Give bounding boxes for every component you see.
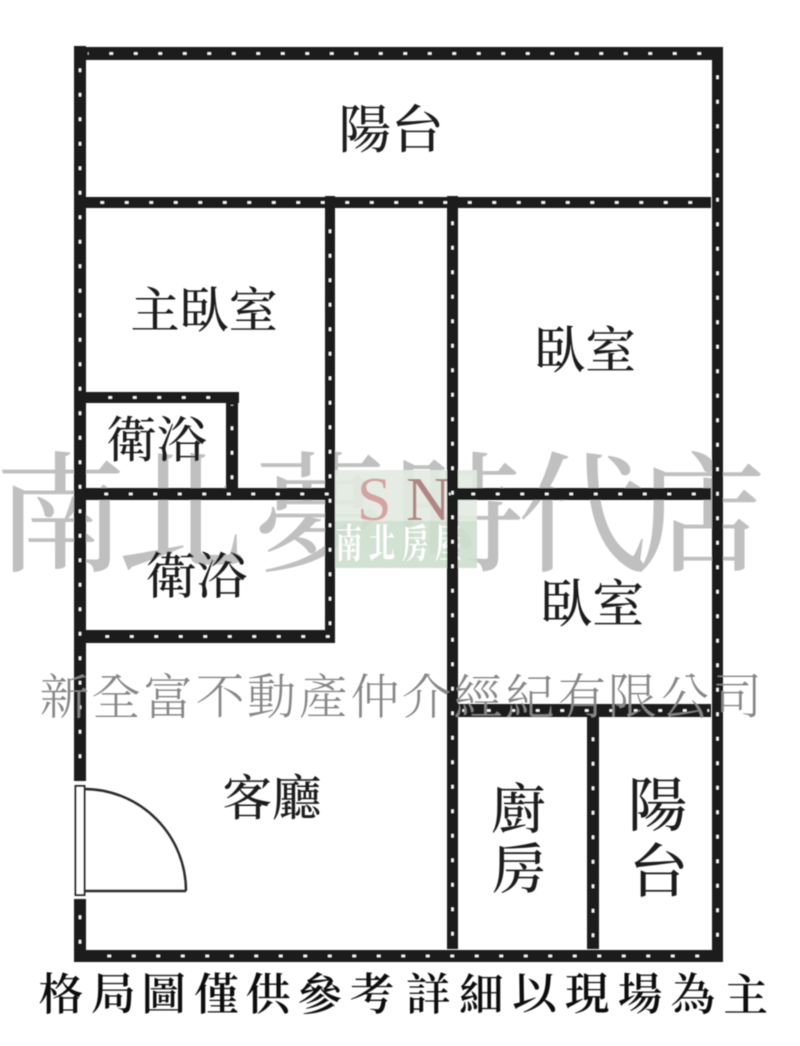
svg-text:N: N	[406, 466, 451, 534]
svg-text:S: S	[357, 466, 391, 534]
